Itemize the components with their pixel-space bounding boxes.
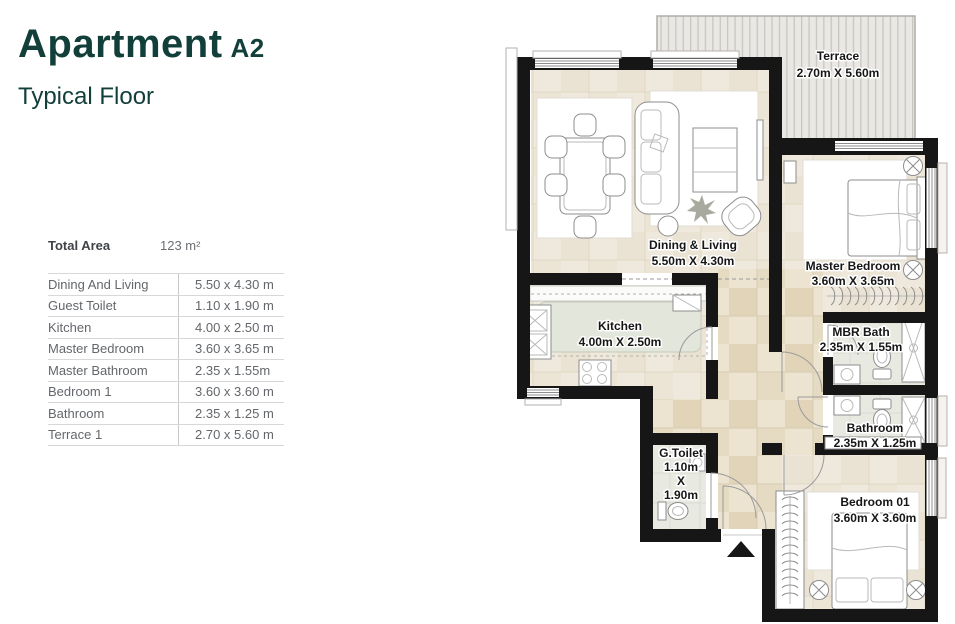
dresser (784, 161, 796, 183)
bedroom01-label: Bedroom 01 (840, 495, 910, 509)
total-area-label: Total Area (48, 238, 160, 253)
row-value: 3.60 x 3.65 m (178, 339, 284, 360)
row-value: 5.50 x 4.30 m (178, 274, 284, 295)
kitchen-label: Kitchen (598, 319, 642, 333)
row-value: 2.35 x 1.55m (178, 360, 284, 381)
table-row: Master Bathroom2.35 x 1.55m (48, 360, 284, 382)
table-row: Bathroom2.35 x 1.25 m (48, 403, 284, 425)
master-bedroom-label: Master Bedroom (806, 259, 901, 273)
area-rows: Dining And Living5.50 x 4.30 m Guest Toi… (48, 273, 284, 446)
row-label: Master Bathroom (48, 363, 178, 378)
wardrobe (776, 491, 804, 609)
area-table: Total Area 123 m² Dining And Living5.50 … (48, 238, 284, 446)
mbr-bath-label: MBR Bath (832, 325, 889, 339)
row-label: Kitchen (48, 320, 178, 335)
title-variant: A2 (231, 33, 265, 63)
entrance-arrow (727, 541, 755, 557)
table-row: Bedroom 13.60 x 3.60 m (48, 382, 284, 404)
table-row: Dining And Living5.50 x 4.30 m (48, 274, 284, 296)
row-label: Dining And Living (48, 277, 178, 292)
terrace-dims: 2.70m X 5.60m (797, 66, 880, 80)
row-label: Guest Toilet (48, 298, 178, 313)
dining-living-dims: 5.50m X 4.30m (652, 254, 735, 268)
row-value: 3.60 x 3.60 m (178, 382, 284, 403)
dining-living-label: Dining & Living (649, 238, 737, 252)
total-area-row: Total Area 123 m² (48, 238, 284, 258)
g-toilet-label: G.Toilet (659, 446, 703, 460)
side-table (658, 216, 678, 236)
row-label: Master Bedroom (48, 341, 178, 356)
tv-unit (757, 120, 763, 180)
page-subtitle: Typical Floor (18, 83, 265, 111)
row-value: 1.10 x 1.90 m (178, 296, 284, 317)
table-row: Terrace 12.70 x 5.60 m (48, 425, 284, 447)
bedroom01-dims: 3.60m X 3.60m (834, 511, 917, 525)
sofa (635, 102, 679, 214)
page-title: ApartmentA2 (18, 22, 265, 67)
coffee-table (693, 128, 737, 192)
header: ApartmentA2 Typical Floor (18, 22, 265, 111)
toilet-tank (873, 399, 891, 409)
row-label: Terrace 1 (48, 427, 178, 442)
title-text: Apartment (18, 22, 223, 66)
table-row: Master Bedroom3.60 x 3.65 m (48, 339, 284, 361)
row-label: Bathroom (48, 406, 178, 421)
g-toilet-dim-w: 1.10m (664, 460, 698, 474)
toilet-tank (658, 502, 666, 520)
toilet-bowl (668, 503, 688, 520)
bathroom-dims: 2.35m X 1.25m (834, 436, 917, 450)
bed (832, 513, 907, 609)
page: { "header": { "title": "Apartment", "var… (0, 0, 955, 624)
bathroom-label: Bathroom (847, 421, 904, 435)
row-value: 2.35 x 1.25 m (178, 403, 284, 424)
table-row: Kitchen4.00 x 2.50 m (48, 317, 284, 339)
table-row: Guest Toilet1.10 x 1.90 m (48, 296, 284, 318)
vanity-sink (834, 365, 860, 384)
kitchen-dims: 4.00m X 2.50m (579, 335, 662, 349)
toilet-tank (873, 369, 891, 379)
master-bedroom-dims: 3.60m X 3.65m (812, 274, 895, 288)
floor-plan: Terrace 2.70m X 5.60m (505, 8, 955, 622)
mbr-bath-dims: 2.35m X 1.55m (820, 340, 903, 354)
master-bed (848, 180, 925, 256)
g-toilet-dim-x: X (677, 474, 685, 488)
row-value: 4.00 x 2.50 m (178, 317, 284, 338)
terrace-label: Terrace (817, 49, 860, 63)
row-label: Bedroom 1 (48, 384, 178, 399)
total-area-value: 123 m² (160, 238, 200, 253)
vanity-sink (834, 396, 860, 415)
row-value: 2.70 x 5.60 m (178, 425, 284, 446)
g-toilet-dim-h: 1.90m (664, 488, 698, 502)
